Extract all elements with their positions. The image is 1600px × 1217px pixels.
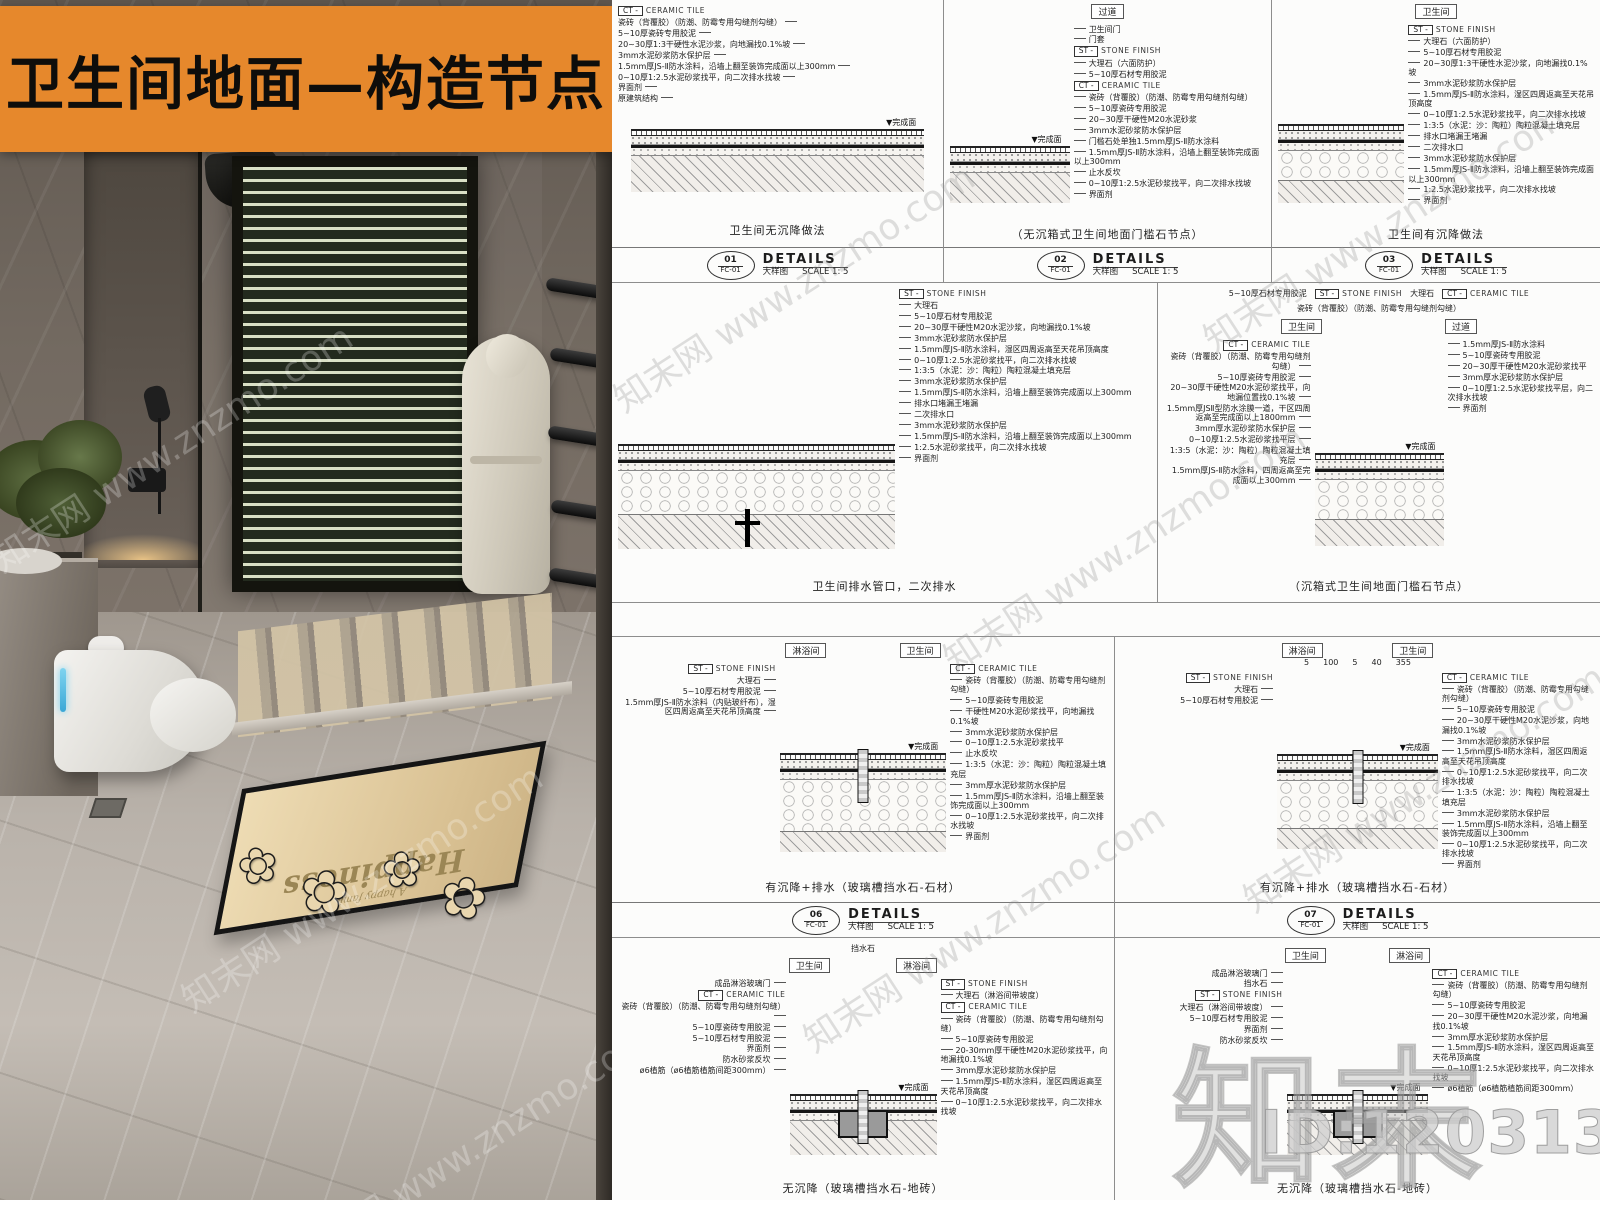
callout-label: 0~10厚1:2.5水泥砂浆找平层	[1164, 435, 1311, 444]
detail-caption: 有沉降+排水（玻璃槽挡水石-石材）	[1115, 879, 1600, 895]
callout-label: CT -CERAMIC TILE	[950, 664, 1108, 675]
finish-tag-box: CT -	[698, 990, 723, 1001]
title-block: 03 FC-01 DETAILS 大样图SCALE 1: 5	[1272, 247, 1600, 282]
detail-panel-08: 挡水石 卫生间淋浴间 成品淋浴玻璃门CT -CERAMIC TILE瓷砖（背覆胶…	[612, 938, 1115, 1200]
callout-label: 界面剂	[618, 1044, 786, 1053]
callout-label: 5~10厚瓷砖专用胶泥	[1164, 373, 1311, 382]
detail-number-bubble: 06 FC-01	[792, 906, 840, 935]
finish-tag-name: CERAMIC TILE	[726, 990, 785, 999]
mat-flower-icon: ✿	[380, 840, 425, 899]
callout-label: 0~10厚1:2.5水泥砂浆找平	[950, 738, 1108, 747]
callout-label: 5~10厚瓷砖专用胶泥	[1074, 104, 1265, 113]
callout-label: 0~10厚1:2.5水泥砂浆找平层，向二次排水找坡	[1448, 384, 1595, 403]
callout-label: CT -CERAMIC TILE	[1432, 969, 1594, 980]
finish-tag-name: STONE FINISH	[927, 289, 987, 298]
room-tag-row: 卫生间过道	[1158, 315, 1600, 334]
dimension-label: 5	[1304, 658, 1309, 667]
finish-tag-name: CERAMIC TILE	[1470, 673, 1529, 682]
finish-tag-box: ST -	[1074, 46, 1098, 57]
callout-list: CT -CERAMIC TILE瓷砖（背覆胶）（防潮、防霉专用勾缝剂勾缝）5~1…	[1432, 967, 1594, 1155]
floor-section-drawing	[780, 753, 947, 852]
drain-pipe	[745, 509, 750, 547]
callout-list: CT -CERAMIC TILE瓷砖（背覆胶）（防潮、防霉专用勾缝剂勾缝）5~1…	[1442, 671, 1594, 849]
room-tag: 卫生间	[1415, 4, 1456, 19]
callout-label: 3mm水泥砂浆防水保护层	[899, 334, 1151, 343]
callout-list: CT -CERAMIC TILE瓷砖（背覆胶）（防潮、防霉专用勾缝剂勾缝）5~1…	[950, 662, 1108, 852]
block-sub-label: 大样图	[1093, 268, 1119, 277]
sheet-code: FC-01	[806, 922, 826, 929]
detail-panel-09: 卫生间淋浴间 成品淋浴玻璃门挡水石ST -STONE FINISH大理石（淋浴间…	[1115, 938, 1600, 1200]
finish-tag-name: CERAMIC TILE	[978, 664, 1037, 673]
detail-number-bubble: 01 FC-01	[707, 251, 755, 280]
room-tag: 卫生间	[1392, 643, 1433, 658]
room-tag-row: 淋浴间卫生间	[712, 639, 1013, 658]
callout-label: ST -STONE FINISH	[1121, 673, 1273, 684]
callout-label: 瓷砖（背覆胶）（防潮、防霉专用勾缝剂勾缝）	[618, 18, 937, 27]
detail-panel-07: 淋浴间卫生间 5100540355 ST -STONE FINISH大理石5~1…	[1115, 636, 1600, 938]
callout-label: 0~10厚1:2.5水泥砂浆找平，向二次排水找坡	[941, 1098, 1109, 1117]
callout-label: ST -STONE FINISH	[899, 289, 1151, 300]
detail-number-bubble: 07 FC-01	[1287, 906, 1335, 935]
callout-label: 瓷砖（背覆胶）（防潮、防霉专用勾缝剂勾缝）	[1442, 685, 1594, 704]
callout-label: 1.5mm厚JS-Ⅱ防水涂料，沿墙上翻至装饰完成面以上300mm	[1442, 820, 1594, 839]
callout-label: 5~10厚瓷砖专用胶泥	[1448, 351, 1595, 360]
details-label: DETAILS	[1421, 253, 1507, 268]
callout-label: 成品淋浴玻璃门	[1121, 969, 1283, 978]
detail-caption: 无沉降（玻璃槽挡水石-地砖）	[612, 1180, 1114, 1196]
callout-list: 成品淋浴玻璃门挡水石ST -STONE FINISH大理石（淋浴间带坡度）5~1…	[1121, 967, 1283, 1155]
callout-label: 3mm水泥砂浆防水保护层	[618, 51, 937, 60]
room-tag-row: 卫生间淋浴间	[722, 954, 1003, 973]
callout-label: ST -STONE FINISH	[1121, 990, 1283, 1001]
title-block: 01 FC-01 DETAILS 大样图SCALE 1: 5	[612, 247, 943, 282]
callout-label: 1.5mm厚JS-Ⅱ防水涂料	[1448, 340, 1595, 349]
callout-label: 大理石（六面防护）	[1074, 59, 1265, 68]
callout-label: 大理石	[1410, 289, 1434, 300]
bathrobe	[462, 336, 550, 594]
callout-label: ST -STONE FINISH	[618, 664, 776, 675]
callout-label: 1:2.5水泥砂浆找平，向二次排水找坡	[899, 443, 1151, 452]
floor-section-drawing: ▼完成面	[950, 53, 1070, 203]
detail-sheet: CT -CERAMIC TILE瓷砖（背覆胶）（防潮、防霉专用勾缝剂勾缝）5~1…	[612, 0, 1600, 1200]
callout-label: 5~10厚瓷砖专用胶泥	[950, 696, 1108, 705]
callout-list: ST -STONE FINISH大理石5~10厚石材专用胶泥20~30厚干硬性M…	[899, 287, 1151, 563]
finish-tag-box: CT -	[1442, 289, 1467, 300]
dimension-row: 5100540355	[1115, 658, 1600, 667]
level-mark: ▼完成面	[908, 741, 938, 752]
room-tag-row: 过道	[944, 0, 1271, 19]
callout-label: 5~10厚石材专用胶泥	[1121, 1014, 1283, 1023]
callout-label: 3mm水泥砂浆防水保护层	[1442, 809, 1594, 818]
callout-list: 卫生间门门套ST -STONE FINISH大理石（六面防护）5~10厚石材专用…	[1074, 23, 1265, 203]
detail-caption: （无沉箱式卫生间地面门槛石节点）	[944, 226, 1271, 242]
callout-label: 防水砂浆反坎	[618, 1055, 786, 1064]
detail-caption: 无沉降（玻璃槽挡水石-地砖）	[1115, 1180, 1600, 1196]
detail-number-bubble: 02 FC-01	[1037, 251, 1085, 280]
callout-list-top: 5~10厚石材专用胶泥ST -STONE FINISH大理石CT -CERAMI…	[1158, 283, 1600, 315]
callout-label: 20~30厚干硬性M20水泥沙浆，向地漏找0.1%坡	[899, 323, 1151, 332]
callout-label: 1.5mm厚JS-Ⅱ防水涂料，四周返高至完成面以上300mm	[1164, 466, 1311, 485]
callout-list: ST -STONE FINISH大理石（六面防护）5~10厚石材专用胶泥20~3…	[1408, 23, 1594, 203]
callout-label: ST -STONE FINISH	[1408, 25, 1594, 36]
callout-list: ST -STONE FINISH大理石5~10厚石材专用胶泥1.5mm厚JS-Ⅱ…	[618, 662, 776, 852]
finish-tag-box: CT -	[1074, 81, 1099, 92]
callout-label: 瓷砖（背覆胶）（防潮、防霉专用勾缝剂勾缝）	[1297, 304, 1461, 313]
glass-channel	[1352, 750, 1363, 804]
callout-label: 1.5mm厚JS-Ⅱ防水涂料，湿区四周返高至天花吊顶高度	[1442, 747, 1594, 766]
callout-label: 0~10厚1:2.5水泥砂浆找平，向二次排水找坡	[899, 356, 1151, 365]
callout-label: ø6植筋（ø6植筋植筋间距300mm）	[1432, 1084, 1594, 1093]
mat-flower-icon: ✿	[295, 855, 354, 930]
callout-label: 1.5mm厚JS-Ⅱ防水涂料，湿区四周返高至天花吊顶高度	[1408, 90, 1594, 109]
title-banner: 卫生间地面—构造节点	[0, 6, 612, 152]
callout-label: 5~10厚石材专用胶泥	[1074, 70, 1265, 79]
bathroom-photo: A happy family Happiness ✿ ✿ ✿ ✿ 卫生间地面—构…	[0, 0, 612, 1200]
level-mark: ▼完成面	[1390, 1082, 1420, 1093]
callout-label: 1.5mm厚JS-Ⅱ防水涂料，沿墙上翻至装饰完成面以上300mm	[618, 62, 937, 71]
callout-label: 5~10厚石材专用胶泥	[1121, 696, 1273, 705]
callout-label: 1.5mm厚JSⅡ型防水涂膜一道，干区四周返高至完成面以上1800mm	[1164, 404, 1311, 423]
callout-label: 1.5mm厚JS-Ⅱ防水涂料，沿墙上翻至装饰完成面以上300mm	[1074, 148, 1265, 167]
callout-label: CT -CERAMIC TILE	[1442, 289, 1529, 300]
callout-label: 20~30厚1:3干硬性水泥沙浆，向地漏找0.1%坡	[618, 40, 937, 49]
callout-label: 挡水石	[851, 944, 875, 953]
callout-label: 1:3:5（水泥：沙：陶粒）陶粒混凝土填充层	[1164, 446, 1311, 465]
callout-label: 3mm厚水泥砂浆防水保护层	[1164, 424, 1311, 433]
callout-label: 卫生间门	[1074, 25, 1265, 34]
detail-panel-01: CT -CERAMIC TILE瓷砖（背覆胶）（防潮、防霉专用勾缝剂勾缝）5~1…	[612, 0, 944, 283]
finish-tag-name: CERAMIC TILE	[1470, 289, 1529, 298]
finish-tag-name: CERAMIC TILE	[968, 1002, 1027, 1011]
callout-label: 5~10厚石材专用胶泥	[899, 312, 1151, 321]
callout-label: 界面剂	[618, 83, 937, 92]
detail-panel-06: 淋浴间卫生间 ST -STONE FINISH大理石5~10厚石材专用胶泥1.5…	[612, 636, 1115, 938]
callout-label: 5~10厚瓷砖专用胶泥	[1442, 705, 1594, 714]
scale-label: SCALE 1: 5	[888, 923, 934, 932]
callout-label: 大理石（六面防护）	[1408, 37, 1594, 46]
block-sub-label: 大样图	[1343, 923, 1369, 932]
scale-label: SCALE 1: 5	[802, 268, 848, 277]
finish-tag-name: CERAMIC TILE	[1251, 340, 1310, 349]
page-title: 卫生间地面—构造节点	[6, 37, 606, 121]
callout-label: 界面剂	[1408, 196, 1594, 205]
callout-label: 1:3:5（水泥：沙：陶粒）陶粒混凝土填充层	[950, 760, 1108, 779]
finish-tag-box: ST -	[1408, 25, 1432, 36]
callout-label: 瓷砖（背覆胶）（防潮、防霉专用勾缝剂勾缝）	[941, 1015, 1109, 1034]
callout-label: 20~30厚干硬性M20水泥沙浆，向地漏找0.1%坡	[1442, 716, 1594, 735]
dimension-label: 40	[1372, 658, 1382, 667]
callout-label: 5~10厚石材专用胶泥	[618, 687, 776, 696]
finish-tag-name: STONE FINISH	[1342, 289, 1402, 298]
callout-label: 1:3:5（水泥：沙：陶粒）陶粒混凝土填充层	[1408, 121, 1594, 130]
callout-label: 5~10厚瓷砖专用胶泥	[1432, 1001, 1594, 1010]
callout-label: 1:3:5（水泥：沙：陶粒）陶粒混凝土填充层	[1442, 788, 1594, 807]
level-mark: ▼完成面	[1405, 441, 1435, 452]
callout-label: 门套	[1074, 35, 1265, 44]
level-mark: ▼完成面	[1400, 742, 1430, 753]
callout-label: 20~30厚干硬性M20水泥砂浆找平，向地漏位置找0.1%坡	[1164, 383, 1311, 402]
callout-label: 1.5mm厚JS-Ⅱ防水涂料，沿墙上翻至装饰完成面以上300mm	[950, 792, 1108, 811]
callout-label: 界面剂	[1442, 860, 1594, 869]
callout-label: 瓷砖（背覆胶）（防潮、防霉专用勾缝剂勾缝）	[950, 676, 1108, 695]
room-tag: 卫生间	[1285, 948, 1326, 963]
callout-label: 5~10厚瓷砖专用胶泥	[941, 1035, 1109, 1044]
callout-list: CT -CERAMIC TILE瓷砖（背覆胶）（防潮、防霉专用勾缝剂勾缝）5~1…	[1164, 338, 1311, 546]
room-tag-row: 淋浴间卫生间	[1212, 639, 1503, 658]
details-label: DETAILS	[763, 253, 849, 268]
callout-label: 大理石（淋浴间带坡度）	[1121, 1003, 1283, 1012]
callout-label: 20-30mm厚干硬性M20水泥砂浆找平，向地漏找0.1%坡	[941, 1046, 1109, 1065]
block-sub-label: 大样图	[848, 923, 874, 932]
callout-label: 瓷砖（背覆胶）（防潮、防霉专用勾缝剂勾缝）	[1074, 93, 1265, 102]
callout-label: ø6植筋（ø6植筋植筋间距300mm）	[618, 1066, 786, 1075]
callout-label: 20~30厚干硬性M20水泥砂浆找平	[1448, 362, 1595, 371]
block-sub-label: 大样图	[763, 268, 789, 277]
callout-label: 瓷砖（背覆胶）（防潮、防霉专用勾缝剂勾缝）	[1432, 981, 1594, 1000]
callout-label: 1.5mm厚JS-Ⅱ防水涂料，湿区四周返高至天花吊顶高度	[899, 345, 1151, 354]
callout-label: ST -STONE FINISH	[1315, 289, 1402, 300]
floor-section-drawing	[631, 129, 924, 192]
callout-label: 5~10厚瓷砖专用胶泥	[618, 1023, 786, 1032]
glass-channel	[858, 1090, 869, 1144]
callout-label: 大理石	[618, 676, 776, 685]
sheet-code: FC-01	[1050, 267, 1070, 274]
callout-label: CT -CERAMIC TILE	[941, 1002, 1109, 1013]
glass-channel	[858, 749, 869, 803]
callout-label: 3mm水泥砂浆防水保护层	[1074, 126, 1265, 135]
level-mark: ▼完成面	[898, 1082, 928, 1093]
room-tag: 淋浴间	[1282, 643, 1323, 658]
callout-label: 界面剂	[899, 454, 1151, 463]
room-tag: 卫生间	[789, 958, 830, 973]
toilet-sensor-light	[60, 668, 66, 712]
callout-label: 0~10厚1:2.5水泥砂浆找平，向二次排水找坡	[950, 812, 1108, 831]
callout-label: 挡水石	[1121, 979, 1283, 988]
finish-tag-name: STONE FINISH	[716, 664, 776, 673]
floor-section-drawing	[1277, 754, 1438, 849]
room-tag: 淋浴间	[896, 958, 937, 973]
glass-channel	[1352, 1090, 1363, 1144]
callout-label: 1.5mm厚JS-Ⅱ防水涂料，湿区四周返高至天花吊顶高度	[1432, 1043, 1594, 1062]
floor-drain	[89, 798, 127, 818]
callout-label: 1.5mm厚JS-Ⅱ防水涂料，沿墙上翻至装饰完成面以上300mm	[1408, 165, 1594, 184]
callout-label: 止水反坎	[950, 749, 1108, 758]
callout-label: 5~10厚瓷砖专用胶泥	[618, 29, 937, 38]
callout-list-top: 挡水石	[612, 938, 1114, 954]
callout-label: 0~10厚1:2.5水泥砂浆找平，向二次排水找坡	[1442, 768, 1594, 787]
finish-tag-name: STONE FINISH	[1213, 673, 1273, 682]
callout-label: 20~30厚1:3干硬性水泥沙浆，向地漏找0.1%坡	[1408, 59, 1594, 78]
wall-corner-edge	[596, 150, 612, 1200]
callout-label: CT -CERAMIC TILE	[618, 990, 786, 1001]
finish-tag-name: CERAMIC TILE	[646, 6, 705, 15]
callout-label: 1.5mm厚JS-Ⅱ防水涂料，湿区四周返高至天花吊顶高度	[941, 1077, 1109, 1096]
room-tag-row: 卫生间	[1272, 0, 1600, 19]
finish-tag-name: STONE FINISH	[1223, 990, 1283, 999]
callout-label: 界面剂	[1074, 190, 1265, 199]
callout-label: 3mm水泥砂浆防水保护层	[950, 728, 1108, 737]
details-label: DETAILS	[1343, 908, 1429, 923]
callout-label: 瓷砖（背覆胶）（防潮、防霉专用勾缝剂勾缝）	[1164, 352, 1311, 371]
callout-label: 1.5mm厚JS-Ⅱ防水涂料，沿墙上翻至装饰完成面以上300mm	[899, 432, 1151, 441]
floor-section-drawing	[1278, 43, 1404, 203]
detail-panel-04: ST -STONE FINISH大理石5~10厚石材专用胶泥20~30厚干硬性M…	[612, 283, 1158, 603]
callout-label: 成品淋浴玻璃门	[618, 979, 786, 988]
title-block: 02 FC-01 DETAILS 大样图SCALE 1: 5	[944, 247, 1271, 282]
callout-label: 原建筑结构	[618, 94, 937, 103]
detail-caption: 卫生间无沉降做法	[612, 222, 943, 238]
floor-section-drawing	[790, 1094, 937, 1155]
callout-label: 排水口堵漏王堵漏	[1408, 132, 1594, 141]
callout-label: 止水反坎	[1074, 168, 1265, 177]
callout-label: CT -CERAMIC TILE	[1074, 81, 1265, 92]
callout-label: 大理石	[1121, 685, 1273, 694]
scale-label: SCALE 1: 5	[1382, 923, 1428, 932]
callout-label: 3mm水泥砂浆防水保护层	[899, 421, 1151, 430]
callout-list: CT -CERAMIC TILE瓷砖（背覆胶）（防潮、防霉专用勾缝剂勾缝）5~1…	[618, 4, 937, 105]
callout-label: 1.5mm厚JS-Ⅱ防水涂料（内贴玻纤布），湿区四周返高至天花吊顶高度	[618, 698, 776, 717]
dimension-label: 100	[1323, 658, 1338, 667]
finish-tag-box: ST -	[1195, 990, 1219, 1001]
callout-label: CT -CERAMIC TILE	[1442, 673, 1594, 684]
dimension-label: 5	[1352, 658, 1357, 667]
detail-panel-03: 卫生间 ST -STONE FINISH大理石（六面防护）5~10厚石材专用胶泥…	[1272, 0, 1600, 283]
callout-label: 干硬性M20水泥砂浆找平，向地漏找0.1%坡	[950, 707, 1108, 726]
callout-label: 防水砂浆反坎	[1121, 1036, 1283, 1045]
finish-tag-box: CT -	[1442, 673, 1467, 684]
room-tag: 淋浴间	[785, 643, 826, 658]
callout-label: 瓷砖（背覆胶）（防潮、防霉专用勾缝剂勾缝）	[618, 1002, 786, 1021]
room-tag: 卫生间	[900, 643, 941, 658]
callout-label: 3mm厚水泥砂浆防水保护层	[1432, 1033, 1594, 1042]
callout-label: 门槛石处单独1.5mm厚JS-Ⅱ防水涂料	[1074, 137, 1265, 146]
callout-list: 成品淋浴玻璃门CT -CERAMIC TILE瓷砖（背覆胶）（防潮、防霉专用勾缝…	[618, 977, 786, 1155]
title-block: 07 FC-01 DETAILS 大样图SCALE 1: 5	[1115, 902, 1600, 937]
callout-label: 大理石	[899, 301, 1151, 310]
callout-label: 0~10厚1:2.5水泥砂浆找平，向二次排水找坡	[618, 73, 937, 82]
detail-panel-05: 5~10厚石材专用胶泥ST -STONE FINISH大理石CT -CERAMI…	[1158, 283, 1600, 603]
callout-label: 20~30厚干硬性M20水泥沙浆，向地漏找0.1%坡	[1432, 1012, 1594, 1031]
callout-label: 1:2.5水泥砂浆找平，向二次排水找坡	[1408, 185, 1594, 194]
level-mark: ▼完成面	[1032, 134, 1062, 145]
floor-section-drawing	[1287, 1094, 1429, 1155]
title-block: 06 FC-01 DETAILS 大样图SCALE 1: 5	[612, 902, 1114, 937]
room-tag: 过道	[1091, 4, 1123, 19]
callout-label: 0~10厚1:2.5水泥砂浆找平，向二次排水找坡	[1408, 110, 1594, 119]
finish-tag-box: CT -	[1223, 340, 1248, 351]
floor-section-drawing	[1315, 453, 1444, 546]
callout-label: 5~10厚石材专用胶泥	[1408, 48, 1594, 57]
callout-label: ST -STONE FINISH	[941, 979, 1109, 990]
detail-caption: 有沉降+排水（玻璃槽挡水石-石材）	[612, 879, 1114, 895]
callout-label: 3mm厚水泥砂浆防水保护层	[941, 1066, 1109, 1075]
finish-tag-box: CT -	[618, 6, 643, 17]
callout-list: ST -STONE FINISH大理石5~10厚石材专用胶泥	[1121, 671, 1273, 849]
callout-label: 3mm水泥砂浆防水保护层	[1408, 79, 1594, 88]
smart-toilet	[54, 650, 206, 772]
sheet-code: FC-01	[1300, 922, 1320, 929]
finish-tag-box: CT -	[950, 664, 975, 675]
callout-label: 0~10厚1:2.5水泥砂浆找平，向二次排水找坡	[1074, 179, 1265, 188]
callout-label: 3mm厚水泥砂浆防水保护层	[1448, 373, 1595, 382]
window-blinds	[232, 156, 478, 592]
finish-tag-name: CERAMIC TILE	[1102, 81, 1161, 90]
finish-tag-name: STONE FINISH	[1436, 25, 1496, 34]
callout-label: 界面剂	[1121, 1025, 1283, 1034]
callout-label: 20~30厚干硬性M20水泥砂浆	[1074, 115, 1265, 124]
room-tag: 过道	[1445, 319, 1477, 334]
finish-tag-box: ST -	[899, 289, 923, 300]
callout-label: 3mm水泥砂浆防水保护层	[1442, 737, 1594, 746]
block-sub-label: 大样图	[1421, 268, 1447, 277]
detail-caption: 卫生间排水管口，二次排水	[612, 578, 1157, 594]
sheet-code: FC-01	[1379, 267, 1399, 274]
detail-caption: 卫生间有沉降做法	[1272, 226, 1600, 242]
callout-label: 1.5mm厚JS-Ⅱ防水涂料，沿墙上翻至装饰完成面以上300mm	[899, 388, 1151, 397]
callout-label: 3mm水泥砂浆防水保护层	[1408, 154, 1594, 163]
finish-tag-box: ST -	[941, 979, 965, 990]
callout-label: 5~10厚石材专用胶泥	[1229, 289, 1307, 300]
callout-label: 界面剂	[1448, 404, 1595, 413]
callout-label: 0~10厚1:2.5水泥砂浆找平，向二次排水找坡	[1442, 840, 1594, 859]
callout-label: 二次排水口	[899, 410, 1151, 419]
callout-label: CT -CERAMIC TILE	[618, 6, 937, 17]
detail-number-bubble: 03 FC-01	[1365, 251, 1413, 280]
callout-label: 界面剂	[950, 832, 1108, 841]
callout-label: 5~10厚石材专用胶泥	[618, 1034, 786, 1043]
finish-tag-name: STONE FINISH	[1101, 46, 1161, 55]
floor-section-drawing	[618, 287, 895, 549]
level-mark: ▼完成面	[886, 117, 916, 128]
finish-tag-box: ST -	[688, 664, 712, 675]
details-label: DETAILS	[1093, 253, 1179, 268]
finish-tag-box: ST -	[1186, 673, 1210, 684]
finish-tag-box: CT -	[941, 1002, 966, 1013]
callout-label: ST -STONE FINISH	[1074, 46, 1265, 57]
callout-label: 大理石（淋浴间带坡度）	[941, 991, 1109, 1000]
callout-list: 1.5mm厚JS-Ⅱ防水涂料5~10厚瓷砖专用胶泥20~30厚干硬性M20水泥砂…	[1448, 338, 1595, 546]
sheet-code: FC-01	[720, 267, 740, 274]
callout-label: CT -CERAMIC TILE	[1164, 340, 1311, 351]
callout-label: 3mm厚水泥砂浆防水保护层	[950, 781, 1108, 790]
callout-label: 排水口堵漏王堵漏	[899, 399, 1151, 408]
finish-tag-box: ST -	[1315, 289, 1339, 300]
callout-label: 3mm水泥砂浆防水保护层	[899, 377, 1151, 386]
detail-panel-02: 过道 ▼完成面 卫生间门门套ST -STONE FINISH大理石（六面防护）5…	[944, 0, 1272, 283]
callout-label: 二次排水口	[1408, 143, 1594, 152]
callout-list: ST -STONE FINISH大理石（淋浴间带坡度）CT -CERAMIC T…	[941, 977, 1109, 1155]
finish-tag-box: CT -	[1432, 969, 1457, 980]
scale-label: SCALE 1: 5	[1461, 268, 1507, 277]
scale-label: SCALE 1: 5	[1132, 268, 1178, 277]
room-tag: 卫生间	[1281, 319, 1322, 334]
dimension-label: 355	[1396, 658, 1411, 667]
detail-caption: （沉箱式卫生间地面门槛石节点）	[1158, 578, 1600, 594]
finish-tag-name: STONE FINISH	[968, 979, 1028, 988]
details-label: DETAILS	[848, 908, 934, 923]
finish-tag-name: CERAMIC TILE	[1460, 969, 1519, 978]
callout-label: 1:3:5（水泥：沙：陶粒）陶粒混凝土填充层	[899, 366, 1151, 375]
room-tag: 淋浴间	[1389, 948, 1430, 963]
room-tag-row: 卫生间淋浴间	[1222, 944, 1494, 963]
shower-hose	[158, 418, 161, 514]
callout-label: 0~10厚1:2.5水泥砂浆找平，向二次排水找坡	[1432, 1064, 1594, 1083]
